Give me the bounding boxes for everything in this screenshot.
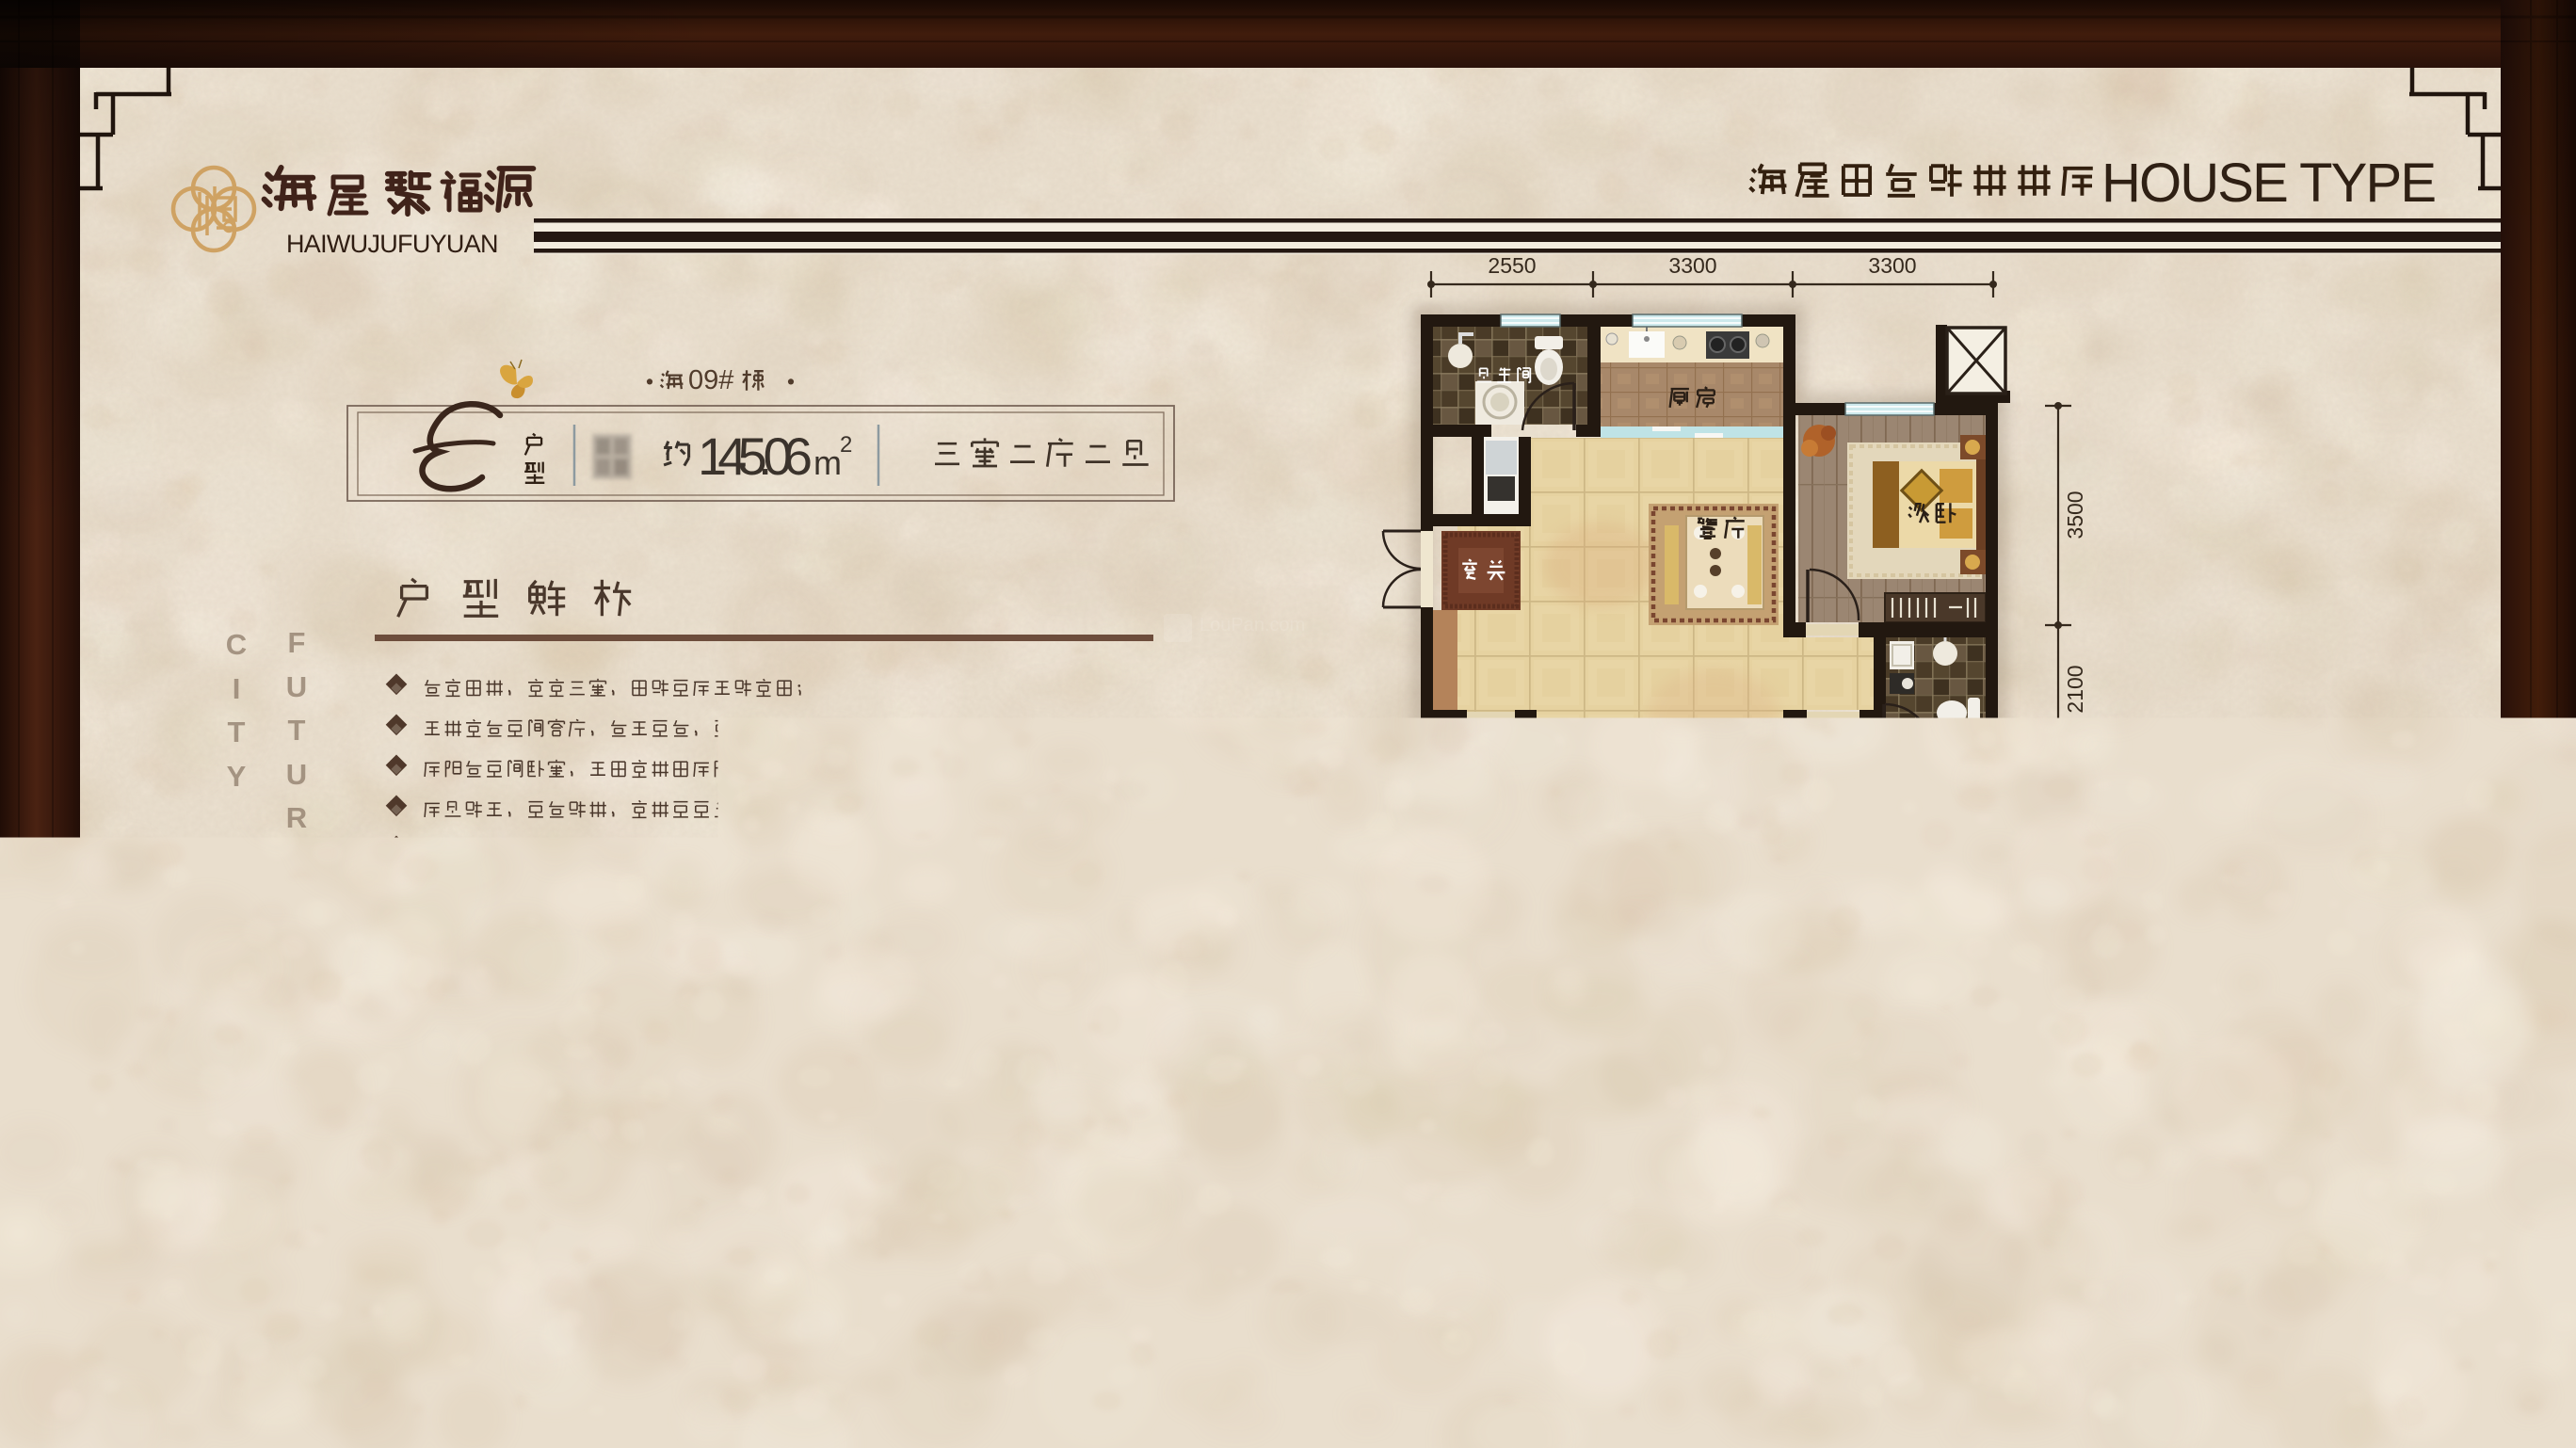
svg-text:E: E [287, 845, 307, 878]
svg-text:1200: 1200 [2063, 1035, 2087, 1083]
svg-text:m: m [813, 443, 842, 482]
svg-text:3000: 3000 [1416, 1209, 1464, 1233]
svg-text:09#: 09# [688, 365, 733, 395]
svg-text:3500: 3500 [2063, 491, 2087, 539]
svg-text:2550: 2550 [1488, 253, 1536, 278]
svg-text:LouPan.com: LouPan.com [1199, 615, 1305, 636]
svg-text:Y: Y [227, 760, 247, 793]
svg-text:HAIWUJUFUYUAN: HAIWUJUFUYUAN [286, 230, 499, 258]
svg-text:I: I [233, 672, 241, 705]
svg-text:2100: 2100 [2063, 665, 2087, 713]
svg-text:T: T [228, 716, 246, 748]
svg-text:2: 2 [840, 432, 852, 458]
svg-text:4200: 4200 [1638, 1209, 1686, 1233]
svg-text:U: U [286, 670, 307, 703]
svg-text:LouPan.com: LouPan.com [1361, 797, 1467, 818]
svg-text:C: C [226, 628, 247, 661]
svg-text:3300: 3300 [1668, 253, 1716, 278]
svg-text:3300: 3300 [1868, 253, 1916, 278]
svg-text:4900: 4900 [2063, 858, 2087, 906]
svg-text:3300: 3300 [1868, 1209, 1916, 1233]
svg-text:U: U [286, 758, 307, 791]
svg-text:R: R [286, 801, 307, 834]
svg-text:SHI REN BU SHI YU XIN LE, JIAN: SHI REN BU SHI YU XIN LE, JIANG WEI TOU … [1035, 1350, 1751, 1371]
svg-text:145.06: 145.06 [698, 426, 813, 486]
svg-text:F: F [288, 626, 306, 659]
svg-text:HOUSE TYPE: HOUSE TYPE [2101, 153, 2437, 214]
svg-text:T: T [288, 714, 306, 747]
